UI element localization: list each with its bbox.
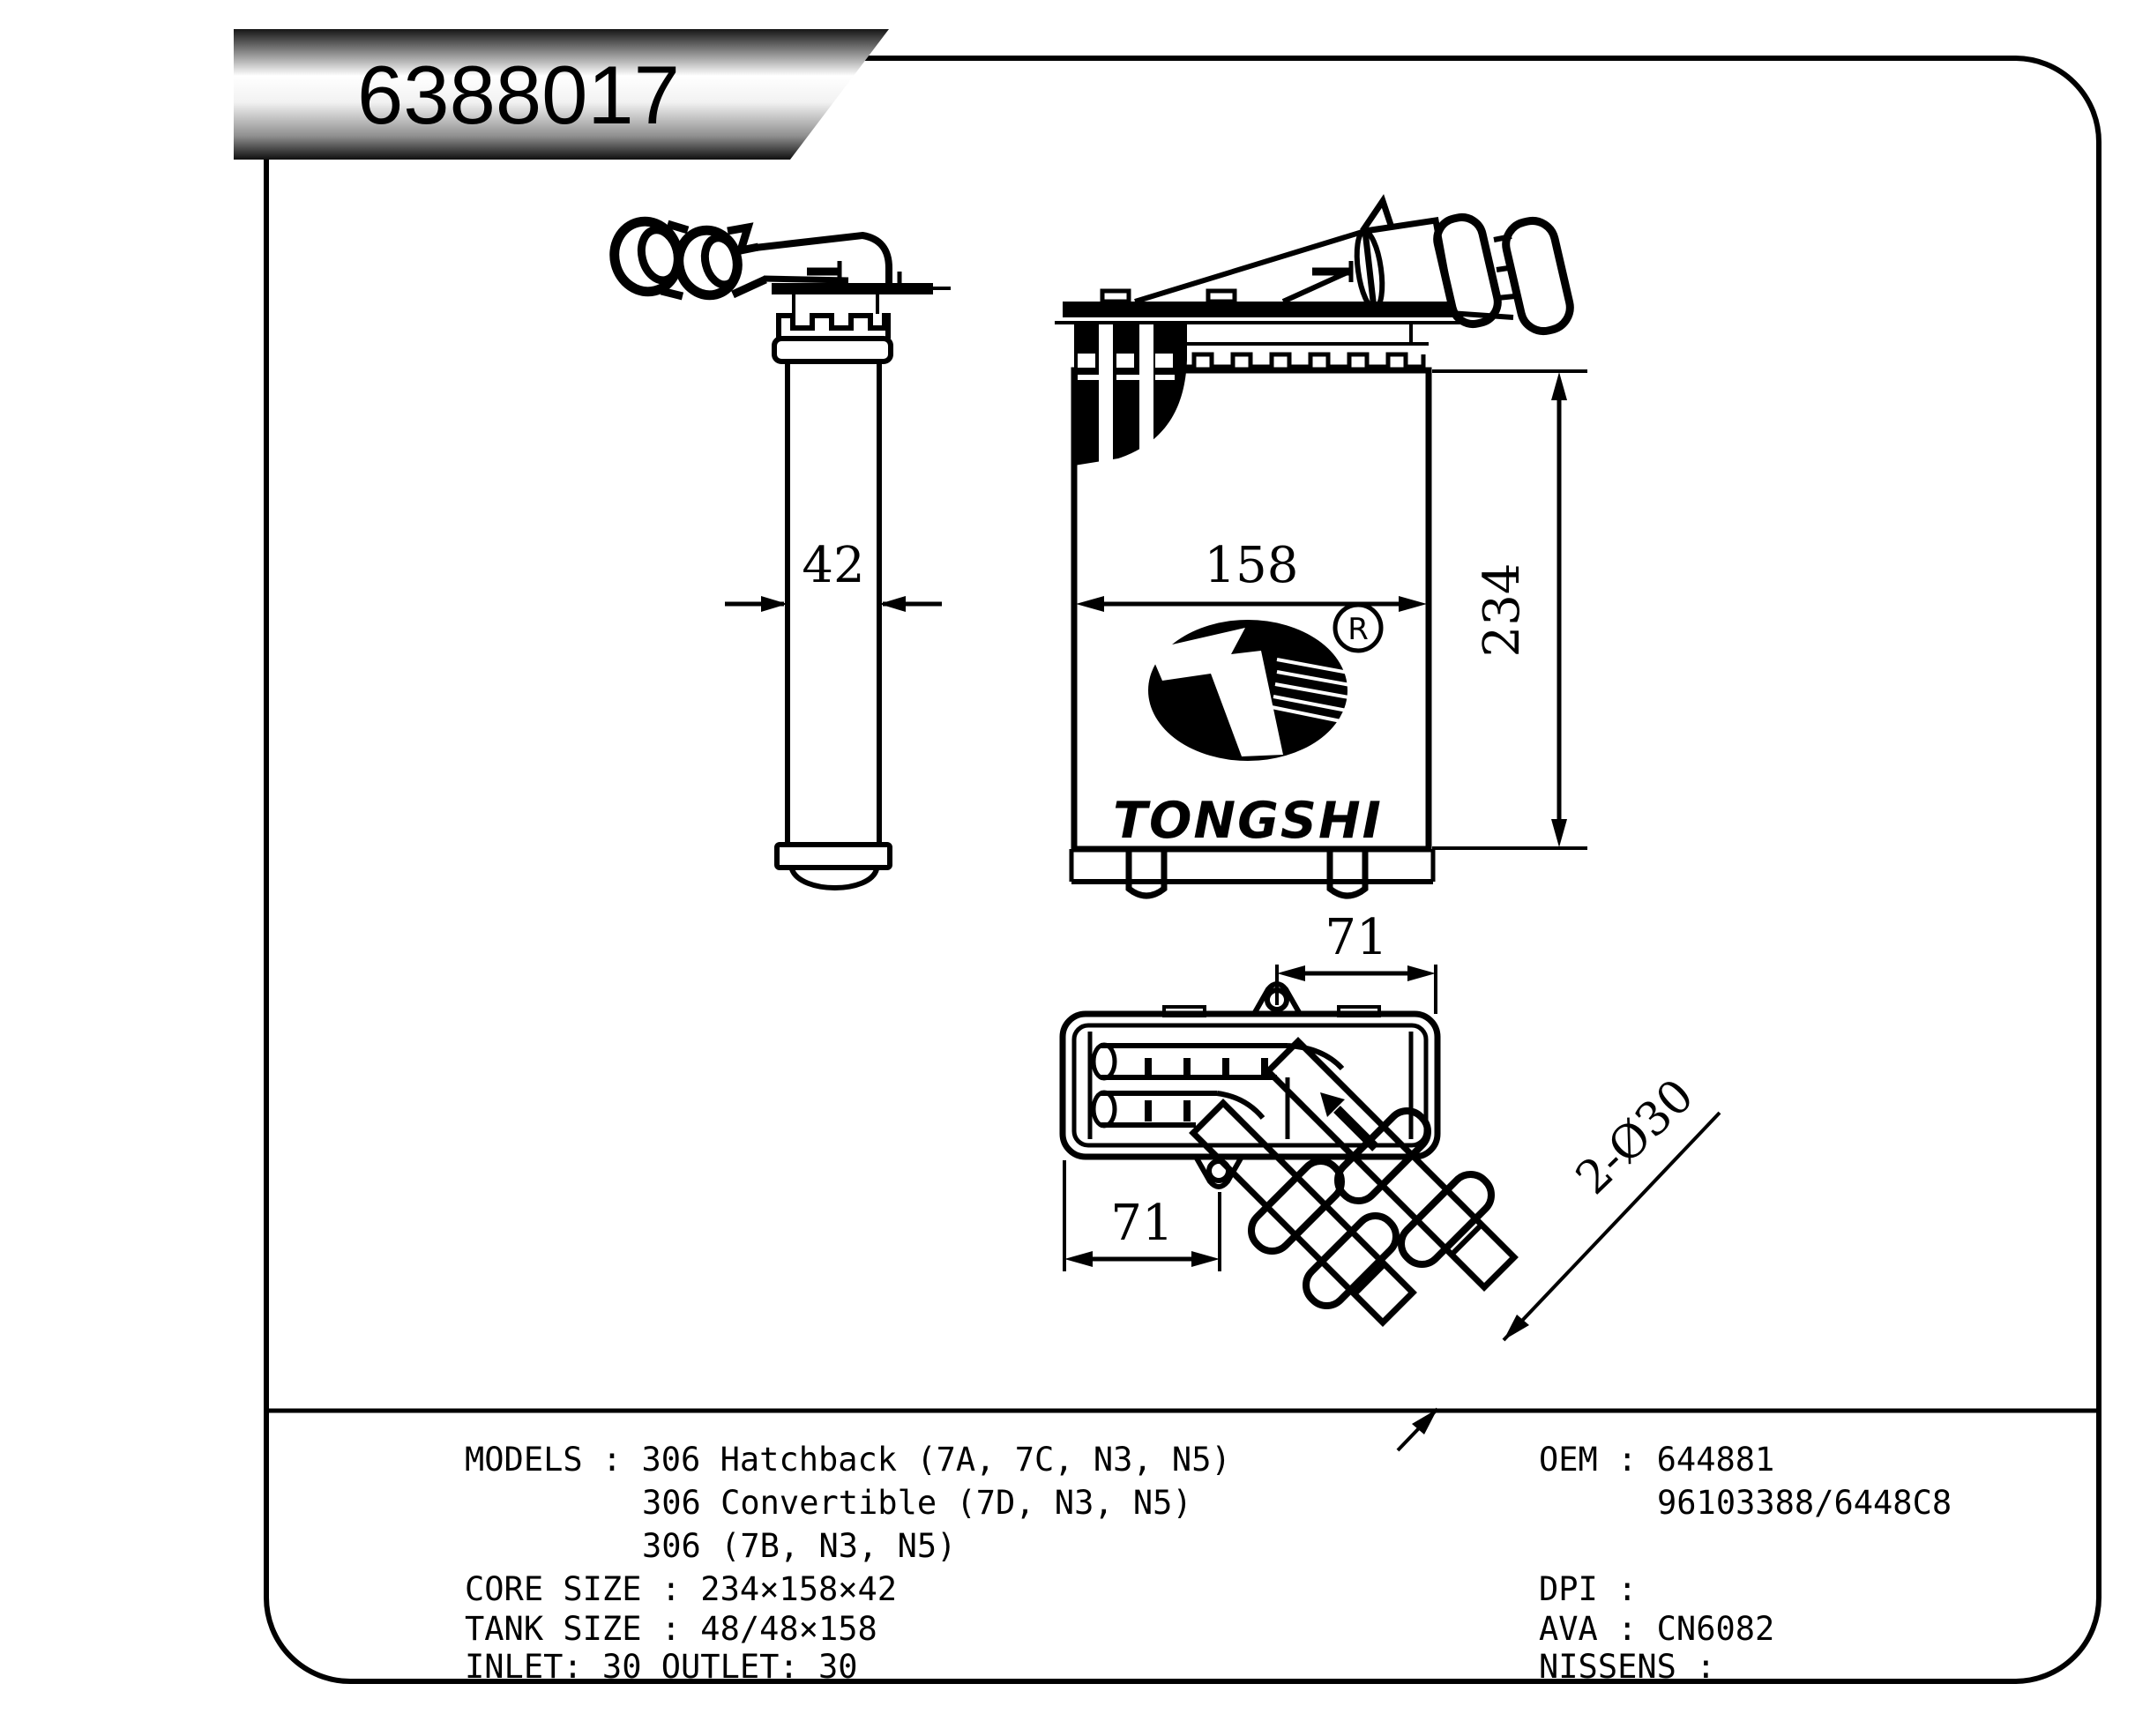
dimension-tank-top: 71: [1277, 909, 1436, 1014]
drawing-page: 6388017: [0, 0, 2150, 1736]
dim-71-top-label: 71: [1325, 909, 1387, 966]
spec-ava: AVA : CN6082: [1539, 1610, 1774, 1648]
spec-oem-2: 96103388/6448C8: [1657, 1484, 1952, 1522]
brand-wordmark: TONGSHI: [1113, 792, 1383, 850]
bottom-brackets: [1071, 849, 1433, 896]
spec-models: MODELS : 306 Hatchback (7A, 7C, N3, N5): [465, 1441, 1231, 1479]
front-view: R TONGSHI 158 234: [1055, 201, 1587, 896]
dimension-tank-bottom: 71: [1064, 1160, 1220, 1271]
side-view: 42: [607, 214, 951, 888]
spec-table: MODELS : 306 Hatchback (7A, 7C, N3, N5) …: [465, 1441, 1952, 1686]
spec-nissens: NISSENS :: [1539, 1648, 1715, 1686]
outlet-pipes: [1193, 1041, 1514, 1322]
tongshi-logo: R TONGSHI: [1113, 605, 1383, 850]
hose-ring-2: [672, 224, 744, 302]
dimension-side-width: 42: [725, 537, 942, 612]
spec-models-3: 306 (7B, N3, N5): [642, 1527, 956, 1565]
corner-marking: [1074, 323, 1187, 466]
registered-letter: R: [1347, 612, 1369, 647]
dim-71-bottom-label: 71: [1110, 1195, 1173, 1252]
dimension-front-height: 234: [1432, 371, 1587, 848]
spec-inlet-outlet: INLET: 30 OUTLET: 30: [465, 1648, 858, 1686]
spec-dpi: DPI :: [1539, 1570, 1637, 1608]
spec-tank-size: TANK SIZE : 48/48×158: [465, 1610, 877, 1648]
part-number-banner: 6388017: [234, 29, 889, 160]
spec-models-2: 306 Convertible (7D, N3, N5): [642, 1484, 1192, 1522]
tank-internal-pipes: [1094, 1045, 1342, 1139]
dim-2d30-label: 2-Ø30: [1566, 1069, 1704, 1205]
dim-234-label: 234: [1474, 563, 1531, 658]
spec-core-size: CORE SIZE : 234×158×42: [465, 1570, 897, 1608]
dim-42-label: 42: [802, 537, 864, 594]
dim-158-label: 158: [1205, 537, 1299, 594]
tank-view: 71 71 2-Ø30: [1063, 909, 1720, 1450]
dimension-front-width: 158: [1076, 537, 1427, 612]
dimension-pipe-diameter: 2-Ø30: [1398, 1069, 1720, 1450]
part-number: 6388017: [357, 48, 680, 141]
spec-oem: OEM : 644881: [1539, 1441, 1774, 1479]
